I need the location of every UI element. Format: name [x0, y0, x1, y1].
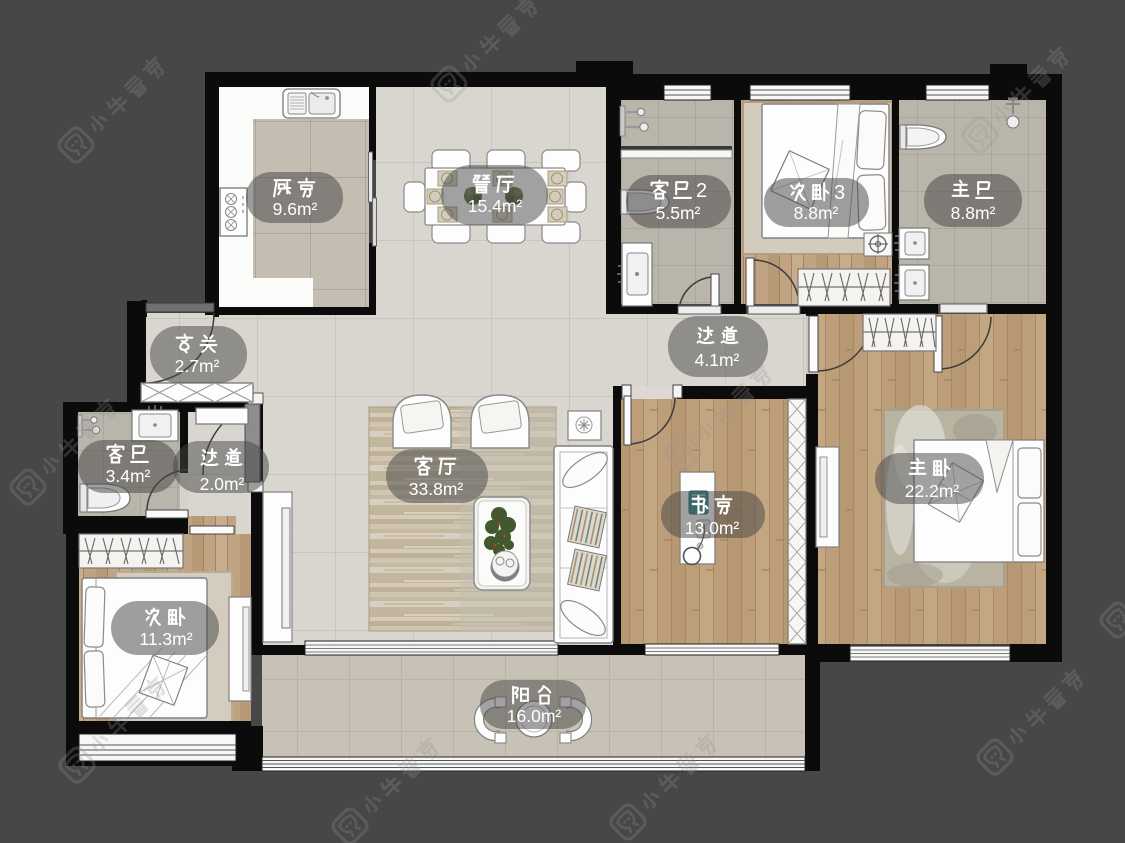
svg-text:2.0m²: 2.0m²	[200, 474, 245, 494]
svg-text:8.8m²: 8.8m²	[794, 203, 839, 223]
svg-text:2: 2	[696, 180, 707, 202]
svg-text:11.3m²: 11.3m²	[139, 629, 192, 649]
svg-text:22.2m²: 22.2m²	[905, 481, 960, 501]
svg-text:33.8m²: 33.8m²	[409, 479, 464, 499]
svg-text:2.7m²: 2.7m²	[175, 356, 220, 376]
svg-text:16.0m²: 16.0m²	[507, 706, 562, 726]
svg-text:3.4m²: 3.4m²	[106, 466, 151, 486]
svg-text:15.4m²: 15.4m²	[468, 196, 523, 216]
svg-text:5.5m²: 5.5m²	[656, 203, 701, 223]
svg-text:8.8m²: 8.8m²	[951, 203, 996, 223]
svg-text:3: 3	[834, 182, 845, 204]
svg-text:4.1m²: 4.1m²	[695, 350, 740, 370]
svg-text:13.0m²: 13.0m²	[685, 518, 740, 538]
svg-text:9.6m²: 9.6m²	[273, 199, 318, 219]
